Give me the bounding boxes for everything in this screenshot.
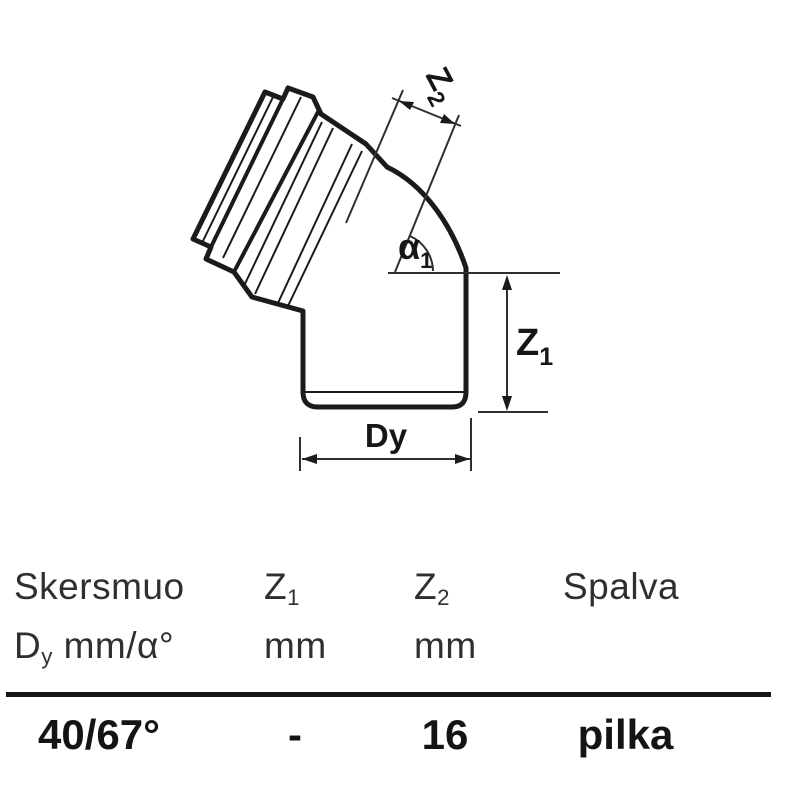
dim-label-dy: Dy xyxy=(365,417,408,454)
header-z1-units: mm xyxy=(264,627,327,664)
z1-arrow-up xyxy=(502,275,512,290)
product-spec-image: Z2 α1 Z1 Dy Skersmuo Z1 Z2 Spalva Dy mm/… xyxy=(0,0,800,800)
z1-arrow-down xyxy=(502,396,512,411)
dy-arrow-left xyxy=(302,454,317,464)
header-z2-sub: 2 xyxy=(437,585,450,610)
dim-label-z2: Z2 xyxy=(413,61,467,111)
z2-arrow-lower xyxy=(440,114,455,124)
header-dy-sub: y xyxy=(41,644,53,669)
header-diameter-units: Dy mm/α° xyxy=(14,627,174,668)
cell-z1: - xyxy=(230,714,360,756)
header-dy-units: mm/α° xyxy=(53,625,174,666)
pipe-elbow-diagram: Z2 α1 Z1 Dy xyxy=(0,0,800,545)
cell-z1-value: - xyxy=(288,711,302,758)
header-z2: Z2 xyxy=(414,568,450,609)
header-color: Spalva xyxy=(563,568,679,605)
cell-color: pilka xyxy=(558,714,693,756)
header-z1-units-label: mm xyxy=(264,625,327,666)
cell-diameter-angle: 40/67° xyxy=(14,714,184,756)
header-z2-units: mm xyxy=(414,627,477,664)
header-color-label: Spalva xyxy=(563,566,679,607)
dy-arrow-right xyxy=(455,454,470,464)
header-dy-main: D xyxy=(14,625,41,666)
header-diameter: Skersmuo xyxy=(14,568,185,605)
header-z2-units-label: mm xyxy=(414,625,477,666)
z2-arrow-upper xyxy=(399,101,414,110)
cell-diameter-angle-value: 40/67° xyxy=(38,711,160,758)
table-rule xyxy=(6,692,771,697)
cell-z2: 16 xyxy=(385,714,505,756)
header-z1-main: Z xyxy=(264,566,287,607)
cell-color-value: pilka xyxy=(578,711,674,758)
cell-z2-value: 16 xyxy=(422,711,469,758)
header-z1: Z1 xyxy=(264,568,300,609)
header-z1-sub: 1 xyxy=(287,585,300,610)
header-diameter-label: Skersmuo xyxy=(14,566,185,607)
header-z2-main: Z xyxy=(414,566,437,607)
dim-label-z1: Z1 xyxy=(516,322,553,371)
